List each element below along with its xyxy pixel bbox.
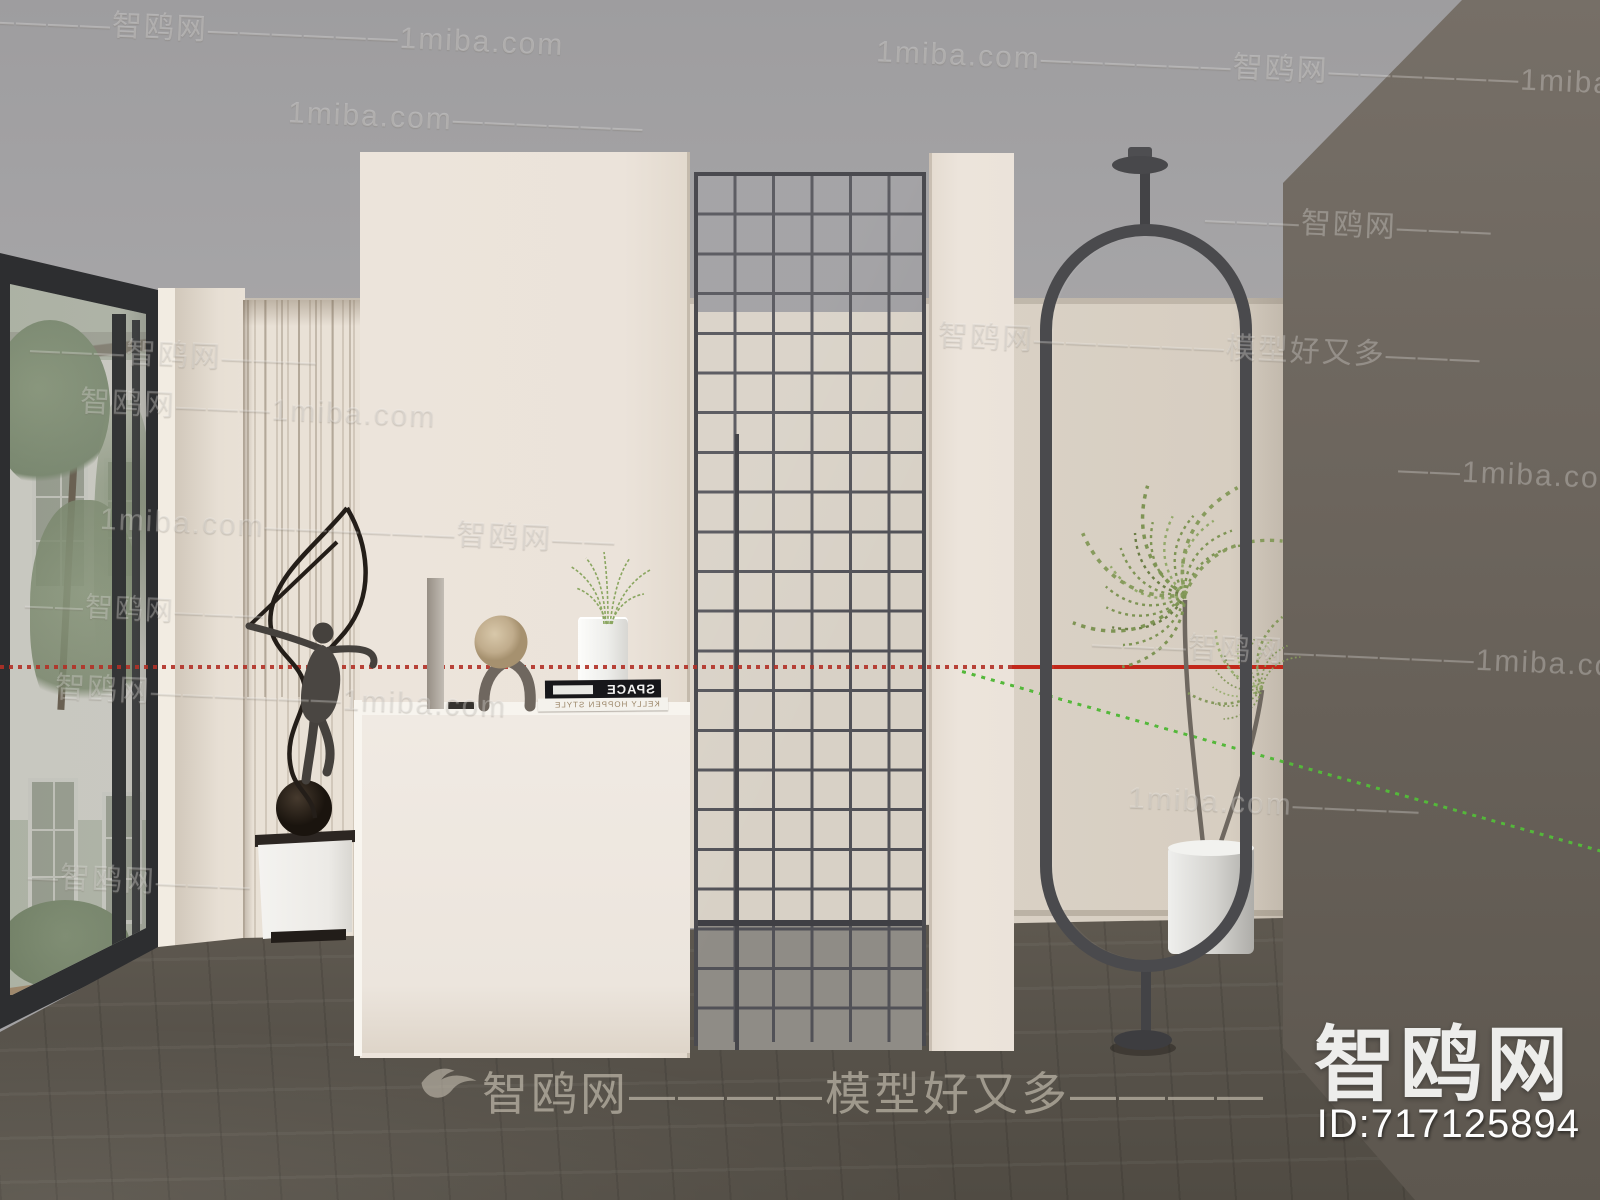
mirror-floor-disc <box>1114 1030 1172 1050</box>
grid-door-divider <box>735 434 739 1050</box>
book-title: SPACE <box>606 681 655 697</box>
book-white: KELLY HOPPEN STYLE <box>538 697 668 711</box>
grid-bottom-rail <box>698 920 922 926</box>
book-title: KELLY HOPPEN STYLE <box>554 699 660 709</box>
partition-panel-right <box>929 153 1014 1051</box>
window-jamb <box>158 288 175 948</box>
site-brand-logo: 智鸥网 <box>1314 998 1572 1117</box>
grid-partition <box>694 172 926 1046</box>
grid-mesh-lines <box>698 176 922 1042</box>
glass-tint <box>10 280 146 995</box>
mirror-ceiling-disc <box>1112 156 1168 174</box>
watermark-text: ——1miba.com <box>1397 453 1600 497</box>
bird-logo-icon <box>420 1062 478 1106</box>
mirror-oval-frame <box>1040 224 1252 972</box>
book-black: SPACE <box>545 679 661 699</box>
curtain-top-shadow <box>243 300 368 326</box>
watermark-footer-text: 智鸥网————模型好又多———— <box>482 1058 1266 1124</box>
window-frame <box>0 250 158 1035</box>
book-spine-label <box>553 685 593 694</box>
mirror-bottom-rod <box>1141 962 1151 1040</box>
render-viewport: SPACE KELLY HOPPEN STYLE <box>0 0 1600 1200</box>
dancer-sculpture <box>225 480 415 950</box>
window-glass <box>10 280 146 995</box>
model-id-label: ID:717125894 <box>1317 1102 1580 1147</box>
